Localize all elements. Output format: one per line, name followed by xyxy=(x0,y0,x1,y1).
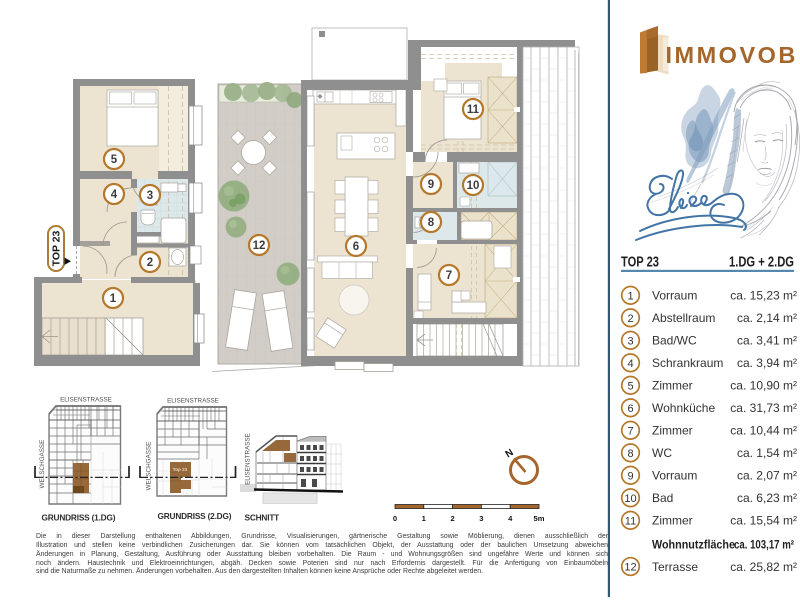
svg-text:SCHNITT: SCHNITT xyxy=(245,513,280,523)
svg-text:10: 10 xyxy=(624,493,636,505)
svg-text:6: 6 xyxy=(627,403,633,415)
svg-text:ELISENSTRASSE: ELISENSTRASSE xyxy=(245,433,252,485)
svg-text:ca. 6,23 m²: ca. 6,23 m² xyxy=(737,491,797,505)
svg-text:ca. 10,44 m²: ca. 10,44 m² xyxy=(730,424,797,438)
svg-text:GRUNDRISS (2.DG): GRUNDRISS (2.DG) xyxy=(158,511,232,521)
svg-text:2: 2 xyxy=(450,514,454,523)
svg-text:Wohnküche: Wohnküche xyxy=(652,401,715,415)
svg-text:ca. 15,23 m²: ca. 15,23 m² xyxy=(730,289,797,303)
svg-text:Vorraum: Vorraum xyxy=(652,289,697,303)
svg-text:4: 4 xyxy=(111,189,118,201)
svg-text:WELSCHGASSE: WELSCHGASSE xyxy=(146,442,153,491)
svg-text:12: 12 xyxy=(624,562,636,574)
svg-text:1: 1 xyxy=(422,514,427,523)
svg-text:1.DG + 2.DG: 1.DG + 2.DG xyxy=(729,255,794,271)
svg-text:10: 10 xyxy=(467,180,480,192)
svg-text:3: 3 xyxy=(627,335,633,347)
svg-text:7: 7 xyxy=(627,425,633,437)
svg-text:N: N xyxy=(504,447,516,460)
svg-text:ca. 2,14 m²: ca. 2,14 m² xyxy=(737,311,797,325)
svg-text:8: 8 xyxy=(627,448,633,460)
svg-text:9: 9 xyxy=(428,179,434,191)
svg-text:12: 12 xyxy=(253,240,266,252)
svg-text:4: 4 xyxy=(508,514,513,523)
svg-text:Wohnnutzfläche: Wohnnutzfläche xyxy=(652,537,735,551)
svg-text:ca. 103,17 m²: ca. 103,17 m² xyxy=(734,537,794,551)
svg-text:ca. 1,54 m²: ca. 1,54 m² xyxy=(737,446,797,460)
svg-text:IMMOVOB: IMMOVOB xyxy=(666,42,798,68)
svg-text:ELISENSTRASSE: ELISENSTRASSE xyxy=(60,397,112,404)
svg-text:1: 1 xyxy=(110,293,117,305)
svg-text:Bad: Bad xyxy=(652,491,673,505)
svg-text:TOP 23: TOP 23 xyxy=(51,230,63,266)
svg-text:ca. 10,90 m²: ca. 10,90 m² xyxy=(730,379,797,393)
svg-text:11: 11 xyxy=(625,515,636,527)
svg-text:Terrasse: Terrasse xyxy=(652,560,698,574)
svg-text:ca. 3,41 m²: ca. 3,41 m² xyxy=(737,334,797,348)
svg-text:ca. 3,94 m²: ca. 3,94 m² xyxy=(737,356,797,370)
svg-text:2: 2 xyxy=(627,313,633,325)
svg-text:4: 4 xyxy=(627,358,633,370)
svg-text:9: 9 xyxy=(627,470,633,482)
svg-text:5: 5 xyxy=(111,154,118,166)
svg-text:5m: 5m xyxy=(534,514,545,523)
svg-text:Zimmer: Zimmer xyxy=(652,424,693,438)
svg-text:Schrankraum: Schrankraum xyxy=(652,356,723,370)
svg-text:7: 7 xyxy=(446,270,452,282)
svg-text:ca. 2,07 m²: ca. 2,07 m² xyxy=(737,469,797,483)
svg-text:Top 23: Top 23 xyxy=(173,467,188,472)
svg-text:Zimmer: Zimmer xyxy=(652,514,693,528)
svg-text:Zimmer: Zimmer xyxy=(652,379,693,393)
svg-text:8: 8 xyxy=(428,217,435,229)
svg-text:WC: WC xyxy=(652,446,672,460)
svg-text:ca. 25,82 m²: ca. 25,82 m² xyxy=(730,560,797,574)
svg-text:WELSCHGASSE: WELSCHGASSE xyxy=(39,440,46,489)
svg-text:6: 6 xyxy=(353,241,359,253)
svg-text:GRUNDRISS (1.DG): GRUNDRISS (1.DG) xyxy=(42,513,116,523)
svg-text:3: 3 xyxy=(479,514,483,523)
svg-text:5: 5 xyxy=(627,380,633,392)
svg-text:Vorraum: Vorraum xyxy=(652,469,697,483)
svg-text:0: 0 xyxy=(393,514,397,523)
svg-text:ELISENSTRASSE: ELISENSTRASSE xyxy=(167,398,219,405)
svg-text:1: 1 xyxy=(627,290,633,302)
svg-text:ca. 15,54 m²: ca. 15,54 m² xyxy=(730,514,797,528)
svg-text:ca. 31,73 m²: ca. 31,73 m² xyxy=(730,401,797,415)
svg-text:3: 3 xyxy=(147,190,153,202)
svg-text:TOP 23: TOP 23 xyxy=(621,255,659,271)
svg-text:11: 11 xyxy=(467,104,480,116)
svg-text:2: 2 xyxy=(147,257,153,269)
svg-text:Bad/WC: Bad/WC xyxy=(652,334,697,348)
svg-text:Abstellraum: Abstellraum xyxy=(652,311,715,325)
